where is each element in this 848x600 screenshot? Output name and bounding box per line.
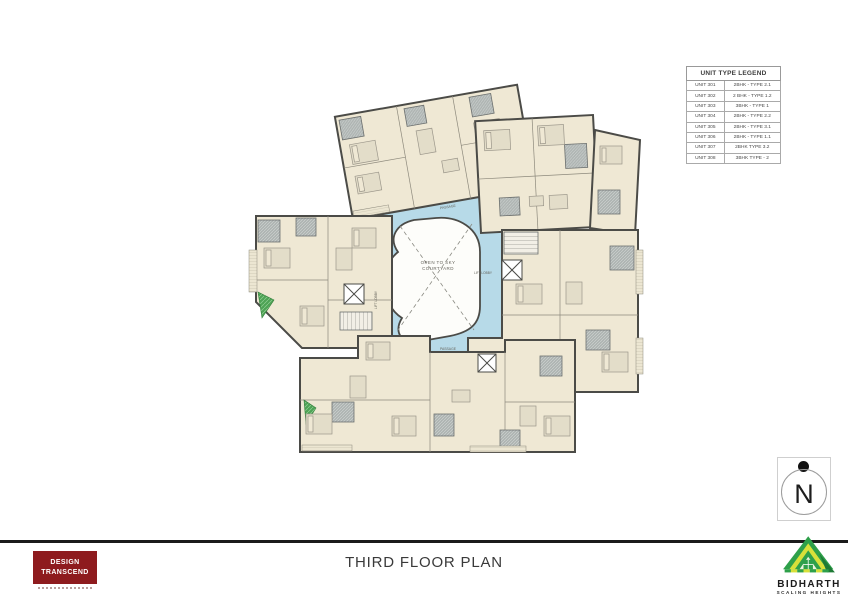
elevator: [478, 354, 496, 372]
legend-type: 2BHK TYPE 3.2: [724, 143, 780, 153]
north-indicator: N: [777, 457, 831, 521]
bidharth-house-icon: [774, 530, 844, 574]
bathroom: [332, 402, 354, 422]
balcony: [470, 446, 526, 452]
bathroom: [598, 190, 620, 214]
legend-row: UNIT 301 2BHK - TYPE 2.1: [687, 81, 781, 91]
elevator: [344, 284, 364, 304]
bathroom: [540, 356, 562, 376]
legend-row: UNIT 307 2BHK TYPE 3.2: [687, 143, 781, 153]
design-logo-line2: TRANSCEND: [41, 568, 89, 577]
bathroom: [404, 105, 427, 126]
legend-unit: UNIT 307: [687, 143, 725, 153]
stairs: [340, 312, 372, 330]
builder-name: BIDHARTH: [772, 580, 846, 590]
design-logo-line1: DESIGN: [50, 558, 79, 567]
legend-unit: UNIT 301: [687, 81, 725, 91]
legend-type: 2BHK - TYPE 2.1: [724, 81, 780, 91]
legend-unit: UNIT 304: [687, 112, 725, 122]
bathroom: [499, 197, 520, 216]
legend-row: UNIT 302 2 BHK - TYPE 1.2: [687, 91, 781, 101]
stairs: [504, 232, 538, 254]
north-circle-icon: N: [781, 469, 827, 515]
legend-row: UNIT 306 2BHK - TYPE 1.1: [687, 132, 781, 142]
bathroom: [500, 430, 520, 448]
wing-left: [249, 216, 392, 348]
lift-lobby-label-right: LIFT LOBBY: [474, 271, 493, 275]
bathroom: [339, 116, 364, 140]
balcony: [249, 250, 257, 292]
wing-bottom: [300, 336, 575, 452]
bathroom: [296, 218, 316, 236]
legend-unit: UNIT 303: [687, 101, 725, 111]
bathroom: [564, 143, 587, 168]
bidharth-logo: BIDHARTH SCALING HEIGHTS: [772, 530, 846, 598]
courtyard-label-1: OPEN TO SKY: [421, 260, 456, 265]
courtyard: [384, 218, 480, 342]
furniture: [600, 146, 622, 164]
elevator: [502, 260, 522, 280]
legend-type: 2 BHK - TYPE 1.2: [724, 91, 780, 101]
page-title: THIRD FLOOR PLAN: [0, 554, 848, 571]
legend-type: 3BHK - TYPE 1: [724, 101, 780, 111]
design-transcend-logo: DESIGN TRANSCEND: [33, 551, 97, 584]
legend-row: UNIT 304 2BHK - TYPE 2.2: [687, 112, 781, 122]
legend-type: 2BHK - TYPE 2.2: [724, 112, 780, 122]
bathroom: [258, 220, 280, 242]
legend-type: 2BHK - TYPE 3.1: [724, 122, 780, 132]
bathroom: [586, 330, 610, 350]
legend-title: UNIT TYPE LEGEND: [687, 67, 781, 81]
wing-top-far-right: [590, 130, 640, 235]
builder-tagline: SCALING HEIGHTS: [772, 590, 846, 596]
floor-plan-sheet: OPEN TO SKY COURTYARD PASSAGE PASSAGE LI…: [0, 0, 848, 600]
design-transcend-tagline: [38, 587, 94, 589]
courtyard-label-2: COURTYARD: [422, 266, 454, 271]
legend-unit: UNIT 308: [687, 153, 725, 163]
legend-row: UNIT 308 3BHK TYPE - 2: [687, 153, 781, 163]
passage-label-bottom: PASSAGE: [440, 347, 457, 351]
north-label: N: [794, 481, 814, 508]
lift-lobby-label-left: LIFT LOBBY: [374, 290, 378, 309]
wing-top-right: [475, 115, 599, 233]
footer-divider: [0, 540, 848, 543]
balcony: [302, 445, 352, 451]
bathroom: [434, 414, 454, 436]
legend-type: 3BHK TYPE - 2: [724, 153, 780, 163]
bathroom: [610, 246, 634, 270]
unit-type-legend: UNIT TYPE LEGEND UNIT 301 2BHK - TYPE 2.…: [686, 66, 781, 164]
legend-unit: UNIT 306: [687, 132, 725, 142]
balcony: [636, 338, 643, 374]
legend-unit: UNIT 305: [687, 122, 725, 132]
bathroom: [469, 93, 494, 117]
balcony: [636, 250, 643, 294]
legend-type: 2BHK - TYPE 1.1: [724, 132, 780, 142]
legend-row: UNIT 303 3BHK - TYPE 1: [687, 101, 781, 111]
legend-unit: UNIT 302: [687, 91, 725, 101]
legend-row: UNIT 305 2BHK - TYPE 3.1: [687, 122, 781, 132]
